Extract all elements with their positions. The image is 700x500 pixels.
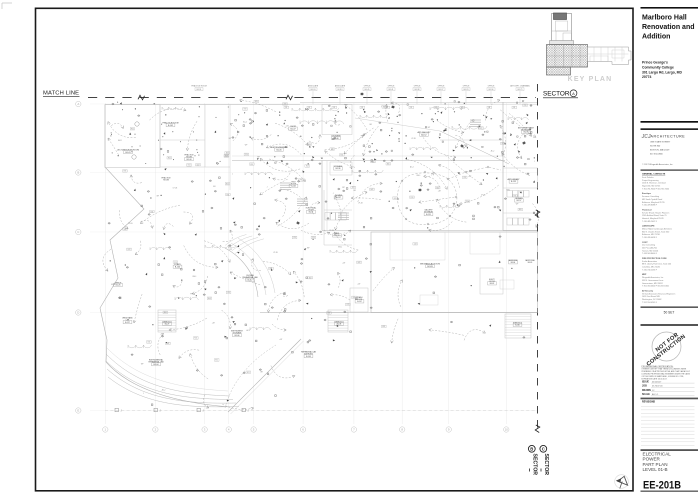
svg-text:JCJ: JCJ — [642, 134, 651, 140]
svg-text:3: 3 — [204, 428, 206, 432]
svg-text:Mahan Rykiel Landscape Archite: Mahan Rykiel Landscape Architects — [642, 227, 672, 230]
svg-text:GFI: GFI — [213, 186, 216, 188]
svg-text:EM-1: EM-1 — [111, 284, 115, 286]
svg-text:1: 1 — [104, 428, 106, 432]
svg-text:AC-2: AC-2 — [410, 165, 414, 168]
svg-text:T 410.439.4458 F: T 410.439.4458 F — [642, 237, 658, 239]
svg-text:ONE STATE STREET: ONE STATE STREET — [650, 141, 671, 144]
svg-text:B-145: B-145 — [365, 89, 370, 91]
svg-text:20774: 20774 — [642, 75, 652, 79]
svg-text:+48": +48" — [212, 323, 216, 325]
svg-text:B-142: B-142 — [168, 125, 173, 127]
svg-text:E12: E12 — [128, 249, 131, 251]
svg-text:R45: R45 — [168, 158, 171, 160]
svg-text:GFI: GFI — [369, 124, 372, 126]
svg-text:WP: WP — [307, 248, 310, 250]
svg-text:Project Engineering: Project Engineering — [642, 179, 659, 182]
svg-text:P26: P26 — [466, 201, 469, 203]
svg-text:B-105: B-105 — [306, 356, 311, 358]
svg-text:B-160: B-160 — [515, 325, 520, 327]
svg-text:LP-1B: LP-1B — [358, 203, 362, 205]
svg-text:DRAWN: DRAWN — [642, 389, 651, 392]
svg-text:B-155: B-155 — [511, 181, 516, 183]
svg-text:GFI: GFI — [156, 195, 159, 197]
svg-text:B-196: B-196 — [489, 89, 494, 91]
svg-text:B-163: B-163 — [427, 266, 433, 268]
svg-text:Scott Pakalns: Scott Pakalns — [642, 176, 654, 179]
svg-text:I HEREBY CERTIFY THAT THESE DO: I HEREBY CERTIFY THAT THESE DOCUMENTS WE… — [642, 367, 688, 370]
svg-text:B-141: B-141 — [389, 89, 394, 91]
svg-text:Germantown, MD 20874: Germantown, MD 20874 — [642, 282, 663, 285]
svg-text:WP: WP — [516, 204, 519, 206]
svg-text:D: D — [77, 311, 79, 315]
svg-text:501 Piccadilly Rd.: 501 Piccadilly Rd. — [642, 248, 658, 250]
svg-text:AS 1:1: AS 1:1 — [652, 393, 659, 396]
svg-text:MEP: MEP — [642, 274, 647, 276]
svg-text:EM-1: EM-1 — [507, 190, 511, 192]
svg-text:R49: R49 — [331, 149, 334, 151]
svg-text:B40: B40 — [436, 187, 439, 189]
svg-text:PP-1B: PP-1B — [190, 294, 195, 296]
svg-text:P23: P23 — [514, 196, 517, 198]
svg-text:Prince George's: Prince George's — [642, 61, 668, 65]
svg-text:B15: B15 — [148, 342, 151, 344]
svg-text:ART DEPT. CHAIRMAN: ART DEPT. CHAIRMAN — [510, 85, 530, 88]
svg-text:B-113: B-113 — [338, 89, 343, 91]
svg-text:WP: WP — [229, 138, 232, 140]
svg-text:OFFICE: OFFICE — [463, 86, 470, 88]
svg-text:A: A — [572, 91, 575, 96]
svg-text:T 301.353.0600 F 301.353.: T 301.353.0600 F 301.353.0601 — [642, 286, 669, 288]
svg-text:+48": +48" — [342, 263, 346, 265]
svg-text:Naperville, MD 21745: Naperville, MD 21745 — [642, 185, 660, 188]
svg-text:B48: B48 — [208, 298, 211, 300]
svg-text:LP-1B: LP-1B — [411, 138, 415, 140]
svg-text:E14: E14 — [306, 166, 309, 168]
svg-text:6: 6 — [302, 428, 304, 432]
svg-text:LP-1B: LP-1B — [273, 252, 277, 254]
svg-text:8: 8 — [401, 428, 403, 432]
svg-text:Washington, DC 20002: Washington, DC 20002 — [642, 298, 661, 301]
svg-text:9: 9 — [448, 428, 450, 432]
svg-text:J: J — [203, 410, 205, 413]
svg-text:R41: R41 — [270, 268, 273, 270]
svg-text:J: J — [121, 410, 123, 413]
svg-text:Renovation and: Renovation and — [642, 24, 695, 31]
svg-text:B-140: B-140 — [175, 266, 181, 268]
svg-text:T 443.563.8400 F: T 443.563.8400 F — [642, 253, 658, 255]
svg-text:50 SET: 50 SET — [664, 310, 675, 314]
svg-text:B-165: B-165 — [528, 262, 533, 264]
svg-text:B-164: B-164 — [511, 262, 516, 264]
svg-text:C29: C29 — [463, 177, 466, 179]
svg-text:Foreman Consulting: Foreman Consulting — [642, 195, 659, 198]
svg-text:B-147: B-147 — [290, 128, 295, 130]
svg-text:P27: P27 — [352, 187, 355, 189]
svg-text:P28: P28 — [300, 180, 303, 182]
svg-text:B-151: B-151 — [426, 214, 431, 216]
svg-text:Marlboro Hall: Marlboro Hall — [642, 15, 687, 22]
svg-text:B-107: B-107 — [357, 301, 362, 303]
svg-text:REVISIONS: REVISIONS — [642, 401, 655, 404]
svg-text:C: C — [77, 230, 79, 234]
svg-text:AC-2: AC-2 — [162, 389, 166, 392]
svg-text:R49: R49 — [284, 104, 287, 106]
svg-text:+48": +48" — [286, 126, 290, 128]
svg-text:OF THE STATE OF MARYLAND, LICE: OF THE STATE OF MARYLAND, LICENSE NO. 74… — [642, 375, 685, 378]
svg-text:88 N. Liberty Park Drive, Suit: 88 N. Liberty Park Drive, Suite 200 — [642, 263, 671, 266]
svg-text:AC-2: AC-2 — [491, 149, 495, 152]
svg-text:LP-1B: LP-1B — [173, 188, 177, 190]
svg-text:B-126: B-126 — [116, 285, 121, 287]
svg-text:P24: P24 — [328, 313, 331, 315]
svg-text:© 2017 Wingardh Associates, In: © 2017 Wingardh Associates, Inc. — [642, 163, 674, 166]
svg-text:J: J — [534, 161, 535, 163]
svg-text:LEVEL 01-B: LEVEL 01-B — [643, 467, 668, 472]
svg-text:C23: C23 — [227, 292, 230, 294]
svg-text:B41: B41 — [164, 312, 167, 314]
svg-text:EXPIRATION DATE: 06.30.2017.: EXPIRATION DATE: 06.30.2017. — [642, 378, 668, 381]
svg-text:B16: B16 — [151, 211, 154, 213]
svg-text:B-112: B-112 — [248, 279, 253, 281]
svg-text:E18: E18 — [382, 326, 385, 328]
svg-text:WP: WP — [229, 249, 232, 251]
svg-text:R44: R44 — [131, 129, 134, 131]
svg-text:B-153: B-153 — [524, 132, 529, 134]
svg-text:1055 First Street NW: 1055 First Street NW — [642, 295, 660, 298]
svg-text:T 410.485.2007 F: T 410.485.2007 F — [642, 221, 658, 223]
svg-text:B-106: B-106 — [235, 335, 240, 337]
svg-text:Wingardh Associates, Inc.: Wingardh Associates, Inc. — [642, 276, 664, 279]
svg-text:E12: E12 — [215, 360, 218, 362]
svg-text:PREPARED OR APPROVED BY ME, AN: PREPARED OR APPROVED BY ME, AND THAT I A… — [642, 370, 691, 373]
svg-text:J: J — [232, 174, 233, 176]
svg-text:800 S. Charles Street, Suite 3: 800 S. Charles Street, Suite 300 — [642, 230, 669, 233]
svg-text:Hamrick, Maryland 21076: Hamrick, Maryland 21076 — [642, 217, 664, 220]
svg-text:J: J — [160, 410, 162, 413]
svg-text:+48": +48" — [468, 176, 472, 178]
svg-text:B42: B42 — [358, 262, 361, 264]
svg-text:EM-1: EM-1 — [118, 140, 122, 142]
svg-text:B46: B46 — [372, 161, 375, 163]
svg-text:ROOM: ROOM — [163, 180, 169, 182]
svg-text:B1: B1 — [285, 107, 287, 109]
svg-text:B1: B1 — [410, 107, 412, 109]
svg-text:Columbia, MD 21046: Columbia, MD 21046 — [642, 267, 660, 269]
svg-text:E10: E10 — [411, 197, 414, 199]
svg-text:WP: WP — [257, 157, 260, 159]
svg-text:B14: B14 — [188, 165, 191, 167]
svg-text:P26: P26 — [524, 105, 527, 107]
svg-text:B19: B19 — [226, 153, 229, 155]
svg-text:C23: C23 — [174, 262, 177, 264]
svg-text:LANDSCAPE: LANDSCAPE — [642, 225, 655, 228]
svg-text:ASSOCIATE: ASSOCIATE — [335, 85, 346, 88]
svg-text:J: J — [267, 187, 268, 189]
svg-text:301 Largo Rd, Largo, MD: 301 Largo Rd, Largo, MD — [642, 70, 682, 74]
svg-text:P23: P23 — [124, 171, 127, 173]
svg-text:Baltimore, Maryland 21215: Baltimore, Maryland 21215 — [642, 201, 665, 204]
svg-text:SUITE 800: SUITE 800 — [650, 146, 661, 148]
svg-text:B-191: B-191 — [197, 89, 202, 91]
svg-text:C: C — [542, 447, 545, 452]
svg-text:AC-2: AC-2 — [243, 121, 247, 124]
svg-text:617.350.0800: 617.350.0800 — [650, 154, 664, 156]
svg-text:+48": +48" — [279, 339, 283, 341]
svg-text:KEY PLAN: KEY PLAN — [568, 76, 613, 83]
svg-text:B16: B16 — [519, 209, 522, 211]
svg-text:B1: B1 — [308, 107, 310, 109]
svg-text:FIRE PROTECTION CODE: FIRE PROTECTION CODE — [642, 258, 667, 260]
svg-text:T 202.554.0245 F: T 202.554.0245 F — [642, 302, 658, 304]
svg-text:GENERAL CONTACTS: GENERAL CONTACTS — [642, 172, 666, 175]
svg-text:WP: WP — [342, 187, 345, 189]
svg-text:EE-201B: EE-201B — [643, 479, 681, 491]
svg-text:B: B — [530, 447, 533, 452]
svg-text:P22: P22 — [340, 155, 343, 157]
svg-text:B1: B1 — [488, 107, 490, 109]
svg-text:R45: R45 — [194, 338, 197, 340]
svg-text:C20: C20 — [312, 237, 315, 239]
svg-text:+48": +48" — [438, 191, 442, 193]
svg-text:B1: B1 — [386, 107, 388, 109]
svg-text:B45: B45 — [387, 164, 390, 166]
svg-text:ARCHITECTURE: ARCHITECTURE — [651, 135, 686, 139]
svg-text:Dair Consulting: Dair Consulting — [642, 244, 655, 247]
svg-text:T 410.478.8588 F: T 410.478.8588 F — [642, 205, 658, 207]
svg-text:Theatrical: Theatrical — [642, 208, 652, 211]
svg-text:BOSTON, MA 02109: BOSTON, MA 02109 — [650, 149, 670, 152]
svg-text:OFFICE: OFFICE — [388, 86, 395, 88]
svg-text:2: 2 — [155, 428, 157, 432]
svg-text:E: E — [77, 409, 79, 413]
svg-text:B-144: B-144 — [187, 159, 192, 161]
svg-text:R48: R48 — [124, 229, 127, 231]
svg-text:SECTOR: SECTOR — [543, 454, 549, 476]
svg-text:R46: R46 — [308, 144, 311, 146]
svg-text:EM-1: EM-1 — [417, 175, 421, 177]
svg-text:B1: B1 — [361, 107, 363, 109]
svg-text:E11: E11 — [247, 372, 250, 374]
svg-text:C29: C29 — [293, 237, 296, 239]
svg-text:T 410.740.2233 F: T 410.740.2233 F — [642, 269, 658, 271]
svg-text:LICENSED PROFESSIONAL ENGINEER: LICENSED PROFESSIONAL ENGINEER UNDER THE… — [642, 373, 691, 376]
svg-text:B-157: B-157 — [517, 200, 522, 202]
svg-text:WP: WP — [428, 127, 431, 129]
svg-text:GFI: GFI — [260, 372, 263, 374]
svg-text:B-104: B-104 — [154, 364, 159, 366]
svg-text:Baltimore, MD 21230: Baltimore, MD 21230 — [642, 233, 660, 236]
svg-text:E19: E19 — [244, 109, 247, 111]
svg-text:1245 Ashland Road, Suite 25: 1245 Ashland Road, Suite 25 — [642, 214, 667, 217]
svg-text:B42: B42 — [309, 277, 312, 279]
svg-text:7: 7 — [353, 428, 355, 432]
svg-text:Schuler Shook Theatre Planners: Schuler Shook Theatre Planners — [642, 211, 669, 214]
svg-text:B47: B47 — [197, 164, 200, 166]
svg-text:B1: B1 — [513, 107, 515, 109]
svg-text:B-145: B-145 — [276, 149, 281, 151]
svg-text:C20: C20 — [225, 156, 228, 158]
svg-text:10: 10 — [505, 428, 509, 432]
svg-text:B-134: B-134 — [291, 186, 296, 188]
svg-text:B1: B1 — [333, 107, 335, 109]
svg-text:B-162: B-162 — [490, 283, 495, 285]
svg-text:Towson, MD 21204: Towson, MD 21204 — [642, 250, 658, 252]
svg-text:C25: C25 — [346, 304, 349, 306]
svg-text:Krafve Associates: Krafve Associates — [642, 260, 657, 263]
svg-text:COST: COST — [642, 242, 648, 244]
svg-text:B42: B42 — [167, 343, 170, 345]
svg-text:OFFICE: OFFICE — [414, 86, 421, 88]
svg-text:P24: P24 — [227, 194, 230, 196]
svg-text:WP: WP — [245, 144, 248, 146]
svg-text:B-127: B-127 — [439, 89, 444, 91]
svg-text:GFI: GFI — [364, 134, 367, 136]
svg-text:Addition: Addition — [642, 34, 670, 41]
svg-text:MATCH LINE: MATCH LINE — [43, 91, 79, 97]
svg-text:+48": +48" — [357, 283, 361, 285]
svg-text:OFFICE: OFFICE — [438, 86, 445, 88]
svg-text:B46: B46 — [383, 107, 386, 109]
svg-text:EM-1: EM-1 — [193, 276, 197, 278]
svg-text:OFFICE: OFFICE — [488, 86, 495, 88]
svg-text:485 South Tyndall Road: 485 South Tyndall Road — [642, 198, 662, 201]
svg-text:B: B — [77, 171, 79, 175]
svg-text:E19: E19 — [255, 101, 258, 103]
svg-text:Vertran Associates Structural: Vertran Associates Structural Engineers — [642, 292, 675, 295]
svg-text:4: 4 — [228, 428, 230, 432]
svg-text:A: A — [77, 102, 79, 106]
svg-text:B-123: B-123 — [464, 89, 469, 91]
svg-text:SCALE: SCALE — [642, 393, 650, 396]
svg-text:SECTOR: SECTOR — [543, 91, 570, 98]
svg-text:PRACTICE ROOM: PRACTICE ROOM — [191, 85, 207, 88]
svg-text:E17: E17 — [502, 143, 505, 145]
svg-text:GFI: GFI — [353, 190, 356, 192]
svg-text:PROFESSIONAL CERTIFICATION.: PROFESSIONAL CERTIFICATION. — [642, 365, 674, 368]
svg-text:B42: B42 — [226, 184, 229, 186]
svg-text:B-141: B-141 — [125, 152, 130, 154]
svg-text:JOB: JOB — [642, 386, 647, 388]
svg-text:PP-1B: PP-1B — [329, 230, 334, 232]
svg-text:EM-1: EM-1 — [338, 247, 342, 249]
svg-text:C24: C24 — [245, 154, 248, 156]
svg-text:Community College: Community College — [642, 65, 674, 69]
svg-text:B-136: B-136 — [336, 168, 341, 170]
svg-text:AV Security: AV Security — [642, 289, 654, 292]
svg-text:R43: R43 — [394, 198, 397, 200]
svg-text:B-138: B-138 — [415, 89, 420, 91]
svg-text:J: J — [143, 393, 144, 395]
svg-text:B-127: B-127 — [125, 322, 130, 324]
svg-text:AC-2: AC-2 — [247, 329, 251, 332]
svg-text:Envelope: Envelope — [642, 193, 652, 195]
svg-text:B-179: B-179 — [518, 89, 523, 91]
svg-text:ASSOCIATE: ASSOCIATE — [308, 85, 319, 88]
svg-text:WP: WP — [141, 363, 144, 365]
svg-text:E19: E19 — [250, 164, 253, 166]
svg-text:PP-1B: PP-1B — [128, 223, 133, 225]
svg-text:ISSUE: ISSUE — [642, 381, 649, 383]
svg-text:SECTOR: SECTOR — [532, 454, 538, 476]
svg-text:J: J — [248, 410, 250, 413]
svg-text:B42: B42 — [371, 189, 374, 191]
svg-text:5: 5 — [253, 428, 255, 432]
svg-text:LP-1B: LP-1B — [481, 195, 485, 197]
svg-text:OFFICE: OFFICE — [364, 86, 371, 88]
svg-text:T 301.761.9000 F 301.761.: T 301.761.9000 F 301.761.9440 — [642, 188, 669, 190]
svg-text:1516 N. Sherman, Overland: 1516 N. Sherman, Overland — [642, 182, 666, 185]
svg-text:B-124: B-124 — [311, 89, 316, 91]
svg-text:933 N. Greenmount Lane: 933 N. Greenmount Lane — [642, 279, 663, 282]
svg-text:J: J — [333, 193, 334, 195]
svg-text:B-129: B-129 — [165, 324, 170, 326]
svg-text:C28: C28 — [414, 244, 417, 246]
